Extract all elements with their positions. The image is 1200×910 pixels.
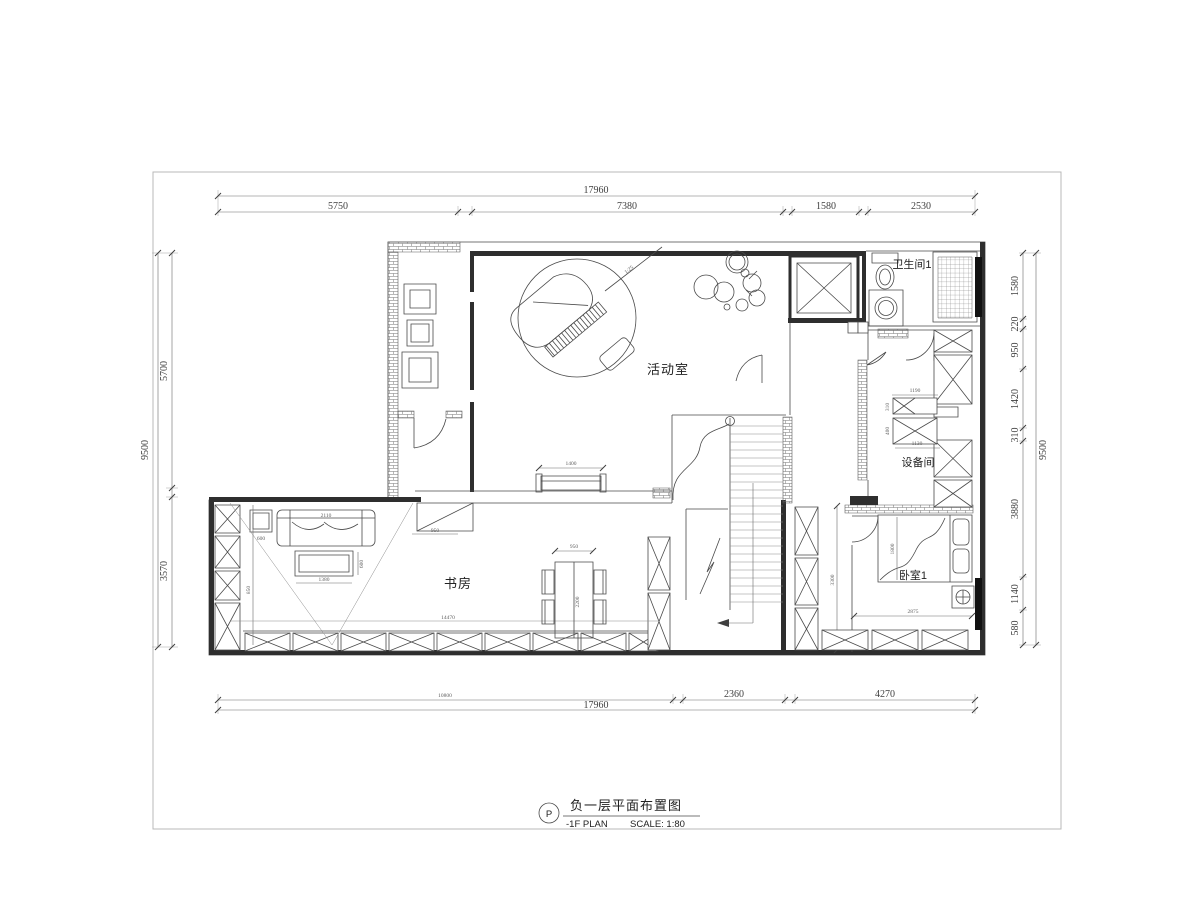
svg-text:1380: 1380 bbox=[319, 577, 330, 583]
break-line bbox=[700, 538, 720, 594]
svg-text:950: 950 bbox=[570, 544, 579, 550]
brick-wall-top bbox=[388, 242, 460, 252]
title-block: P 负一层平面布置图 -1F PLAN SCALE: 1:80 bbox=[539, 798, 700, 830]
dim-left-2: 3570 bbox=[159, 561, 170, 581]
dim-left-1: 5700 bbox=[159, 361, 170, 381]
curved-wall bbox=[673, 424, 729, 500]
dim-right-5: 310 bbox=[1010, 428, 1021, 443]
drum-set bbox=[694, 251, 765, 311]
wall-stub bbox=[653, 488, 670, 498]
svg-text:400: 400 bbox=[885, 427, 891, 436]
dim-right-7: 1140 bbox=[1010, 584, 1021, 604]
dim-bottom-1: 10800 bbox=[438, 693, 452, 699]
vanity bbox=[869, 290, 903, 326]
plan-tag: P bbox=[546, 809, 552, 820]
brick-wall-left bbox=[388, 252, 398, 500]
dim-top-3: 1580 bbox=[816, 201, 836, 212]
dim-top-total: 17960 bbox=[584, 185, 609, 196]
floor-plan-sheet: 17960 5750 7380 1580 2530 10800 2360 427… bbox=[0, 0, 1200, 910]
dimension-right: 1580 220 950 1420 310 3880 1140 580 9500 bbox=[1010, 250, 1049, 648]
grand-piano bbox=[504, 264, 609, 366]
dim-bottom-3: 4270 bbox=[875, 689, 895, 700]
dim-right-1: 1580 bbox=[1010, 276, 1021, 296]
bathroom-window bbox=[975, 257, 982, 317]
bedroom-door bbox=[852, 516, 878, 542]
svg-text:3300: 3300 bbox=[830, 574, 836, 585]
svg-text:2110: 2110 bbox=[321, 513, 332, 519]
dim-bottom-total: 17960 bbox=[584, 700, 609, 711]
pillow bbox=[953, 519, 969, 545]
dim-top-4: 2530 bbox=[911, 201, 931, 212]
svg-text:600: 600 bbox=[257, 536, 266, 542]
door-jamb-right bbox=[446, 411, 462, 418]
dimension-bottom: 10800 2360 4270 17960 bbox=[215, 689, 978, 714]
activity-label: 活动室 bbox=[647, 362, 689, 377]
svg-text:850: 850 bbox=[246, 586, 252, 595]
svg-text:600: 600 bbox=[359, 560, 365, 569]
svg-text:1800: 1800 bbox=[890, 543, 896, 554]
svg-text:1190: 1190 bbox=[910, 388, 921, 394]
plan-scale: SCALE: 1:80 bbox=[630, 819, 685, 830]
dimension-left: 9500 5700 3570 bbox=[140, 250, 178, 650]
svg-text:1130: 1130 bbox=[912, 441, 923, 447]
floor-plan-drawing: 17960 5750 7380 1580 2530 10800 2360 427… bbox=[0, 0, 1200, 910]
bathroom-door bbox=[906, 333, 934, 361]
svg-text:950: 950 bbox=[431, 528, 440, 534]
brick-wall-stairs bbox=[783, 417, 792, 503]
direction-arrow bbox=[717, 619, 729, 627]
dim-bottom-2: 2360 bbox=[724, 689, 744, 700]
hall-door bbox=[736, 355, 762, 383]
door-arc bbox=[414, 418, 446, 448]
elevator bbox=[790, 256, 858, 320]
svg-text:2875: 2875 bbox=[908, 609, 919, 615]
light-well bbox=[402, 284, 446, 448]
projection-lines bbox=[230, 503, 413, 645]
equipment-label: 设备间 bbox=[902, 455, 935, 469]
svg-text:310: 310 bbox=[885, 403, 891, 412]
dim-right-8: 580 bbox=[1010, 621, 1021, 636]
svg-text:1400: 1400 bbox=[566, 461, 577, 467]
piano-bench bbox=[598, 336, 636, 372]
plan-title-en: -1F PLAN bbox=[566, 819, 608, 830]
hall-bench: 1400 bbox=[536, 461, 606, 492]
sofa: 2110 bbox=[277, 510, 375, 546]
dim-right-2: 220 bbox=[1010, 317, 1021, 332]
plan-title-cn: 负一层平面布置图 bbox=[570, 798, 682, 813]
stairs bbox=[673, 417, 783, 628]
pillow bbox=[953, 549, 969, 573]
equipment-door bbox=[867, 352, 886, 365]
dim-top-2: 7380 bbox=[617, 201, 637, 212]
dim-left-total: 9500 bbox=[140, 440, 151, 460]
activity-room: 1:25 活动室 1400 bbox=[504, 247, 765, 492]
dimension-top: 17960 5750 7380 1580 2530 bbox=[215, 185, 978, 216]
game-table: 950 2200 bbox=[542, 544, 606, 638]
coffee-table: 1380 600 bbox=[295, 551, 365, 583]
study: 2110 600 1380 600 850 950 14470 950 2200 bbox=[230, 503, 659, 645]
treads bbox=[730, 426, 783, 602]
bedroom-label: 卧室1 bbox=[899, 568, 927, 582]
shower-floor bbox=[938, 257, 972, 318]
dim-right-4: 1420 bbox=[1010, 389, 1021, 409]
bathroom-label: 卫生间1 bbox=[892, 257, 931, 271]
svg-text:2200: 2200 bbox=[575, 596, 581, 607]
door-jamb-left bbox=[398, 411, 414, 418]
piano-detail-scale: 1:25 bbox=[624, 265, 636, 276]
bathroom-threshold bbox=[878, 329, 908, 338]
dim-right-6: 3880 bbox=[1010, 499, 1021, 519]
dim-top-1: 5750 bbox=[328, 201, 348, 212]
brick-wall-corridor bbox=[858, 360, 867, 480]
dim-right-3: 950 bbox=[1010, 343, 1021, 358]
svg-text:14470: 14470 bbox=[441, 615, 455, 621]
dim-right-total: 9500 bbox=[1038, 440, 1049, 460]
elevator-x bbox=[797, 263, 851, 313]
bedroom-window bbox=[975, 578, 982, 630]
study-label: 书房 bbox=[444, 576, 472, 591]
